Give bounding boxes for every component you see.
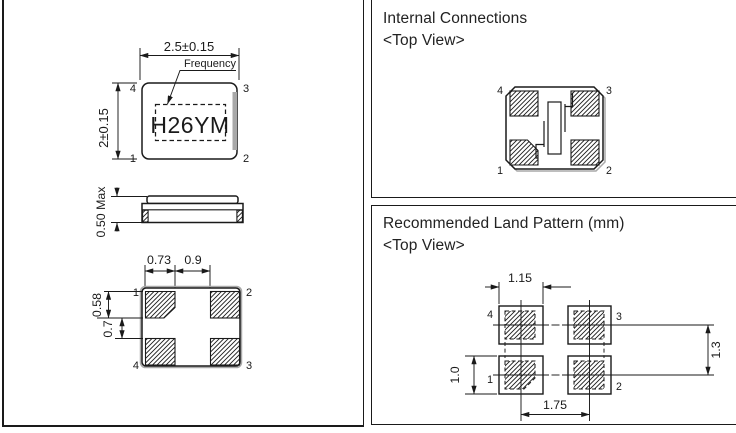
- pad-height-dimension-text: 1.0: [448, 366, 462, 383]
- package-pad-3-overlay: [574, 311, 604, 339]
- pin-label-4: 4: [497, 85, 503, 97]
- pad-2-hatch: [211, 292, 240, 319]
- row-pitch-dimension-text: 1.3: [709, 341, 723, 358]
- pin-label-2: 2: [246, 287, 252, 299]
- frequency-label: Frequency: [184, 58, 236, 70]
- pad-2-hatch: [571, 140, 599, 165]
- pin-label-2: 2: [616, 381, 622, 393]
- pin-label-1: 1: [133, 287, 139, 299]
- part-marking: H26YM: [150, 112, 229, 138]
- internal-connections-panel: Internal Connections <Top View> 4 3 1 2: [371, 0, 736, 198]
- height-dimension-text: 2±0.15: [96, 108, 111, 148]
- pin-label-3: 3: [616, 311, 622, 323]
- terminal-hatch-left: [143, 210, 149, 222]
- package-bottom-view: 0.73 0.9 1 2 4 3 0.58 0.7: [90, 253, 252, 372]
- mechanical-drawings: 2.5±0.15 2±0.15 H26YM Frequency 4 3 1 2 …: [0, 0, 363, 433]
- package-pad-2-overlay: [574, 361, 604, 389]
- pad-width-dimension-text: 0.73: [147, 253, 171, 267]
- body-outline: [142, 204, 243, 223]
- package-side-view: 0.50 Max: [94, 186, 243, 238]
- pin-label-3: 3: [606, 85, 612, 97]
- height-dimension-text: 0.50 Max: [94, 186, 108, 238]
- pad-width-dimension-text: 1.15: [508, 271, 532, 285]
- internal-connections-title: Internal Connections: [383, 8, 736, 30]
- lid-outline: [147, 196, 238, 204]
- column-pitch-dimension-text: 1.75: [543, 398, 567, 412]
- width-dimension-text: 2.5±0.15: [164, 39, 215, 54]
- metallized-edge: [233, 92, 238, 150]
- pad-spacing-dimension-text: 0.9: [184, 253, 201, 267]
- pin-label-3: 3: [243, 83, 249, 95]
- pin-label-4: 4: [130, 83, 136, 95]
- pad-height-dimension-text: 0.58: [90, 293, 104, 317]
- pin-label-1: 1: [487, 374, 493, 386]
- pin-label-2: 2: [243, 153, 249, 165]
- pin-label-1: 1: [497, 165, 503, 177]
- pin-label-4: 4: [487, 309, 493, 321]
- pad-4-hatch: [146, 339, 176, 366]
- land-pattern-diagram: 1.15 1.0 1.3 1.75 4 3 1 2: [381, 256, 736, 428]
- pin-label-3: 3: [246, 360, 252, 372]
- row-gap-dimension-text: 0.7: [101, 320, 115, 337]
- datasheet-page: 2.5±0.15 2±0.15 H26YM Frequency 4 3 1 2 …: [0, 0, 736, 433]
- land-pattern-title: Recommended Land Pattern (mm): [383, 213, 736, 235]
- pad-4-hatch: [510, 91, 538, 116]
- internal-connections-subtitle: <Top View>: [383, 30, 736, 52]
- package-pad-4-overlay: [505, 311, 535, 339]
- package-top-view: 2.5±0.15 2±0.15 H26YM Frequency 4 3 1 2: [96, 39, 249, 165]
- terminal-hatch-right: [237, 210, 243, 222]
- crystal-element: [548, 102, 561, 154]
- internal-connections-diagram: 4 3 1 2: [488, 79, 618, 179]
- pin-label-2: 2: [606, 165, 612, 177]
- land-pattern-subtitle: <Top View>: [383, 235, 736, 257]
- pin-label-1: 1: [130, 153, 136, 165]
- land-pattern-panel: Recommended Land Pattern (mm) <Top View>: [371, 205, 736, 425]
- pad-3-hatch: [211, 339, 240, 366]
- pin-label-4: 4: [133, 360, 139, 372]
- pad-3-hatch: [571, 91, 599, 116]
